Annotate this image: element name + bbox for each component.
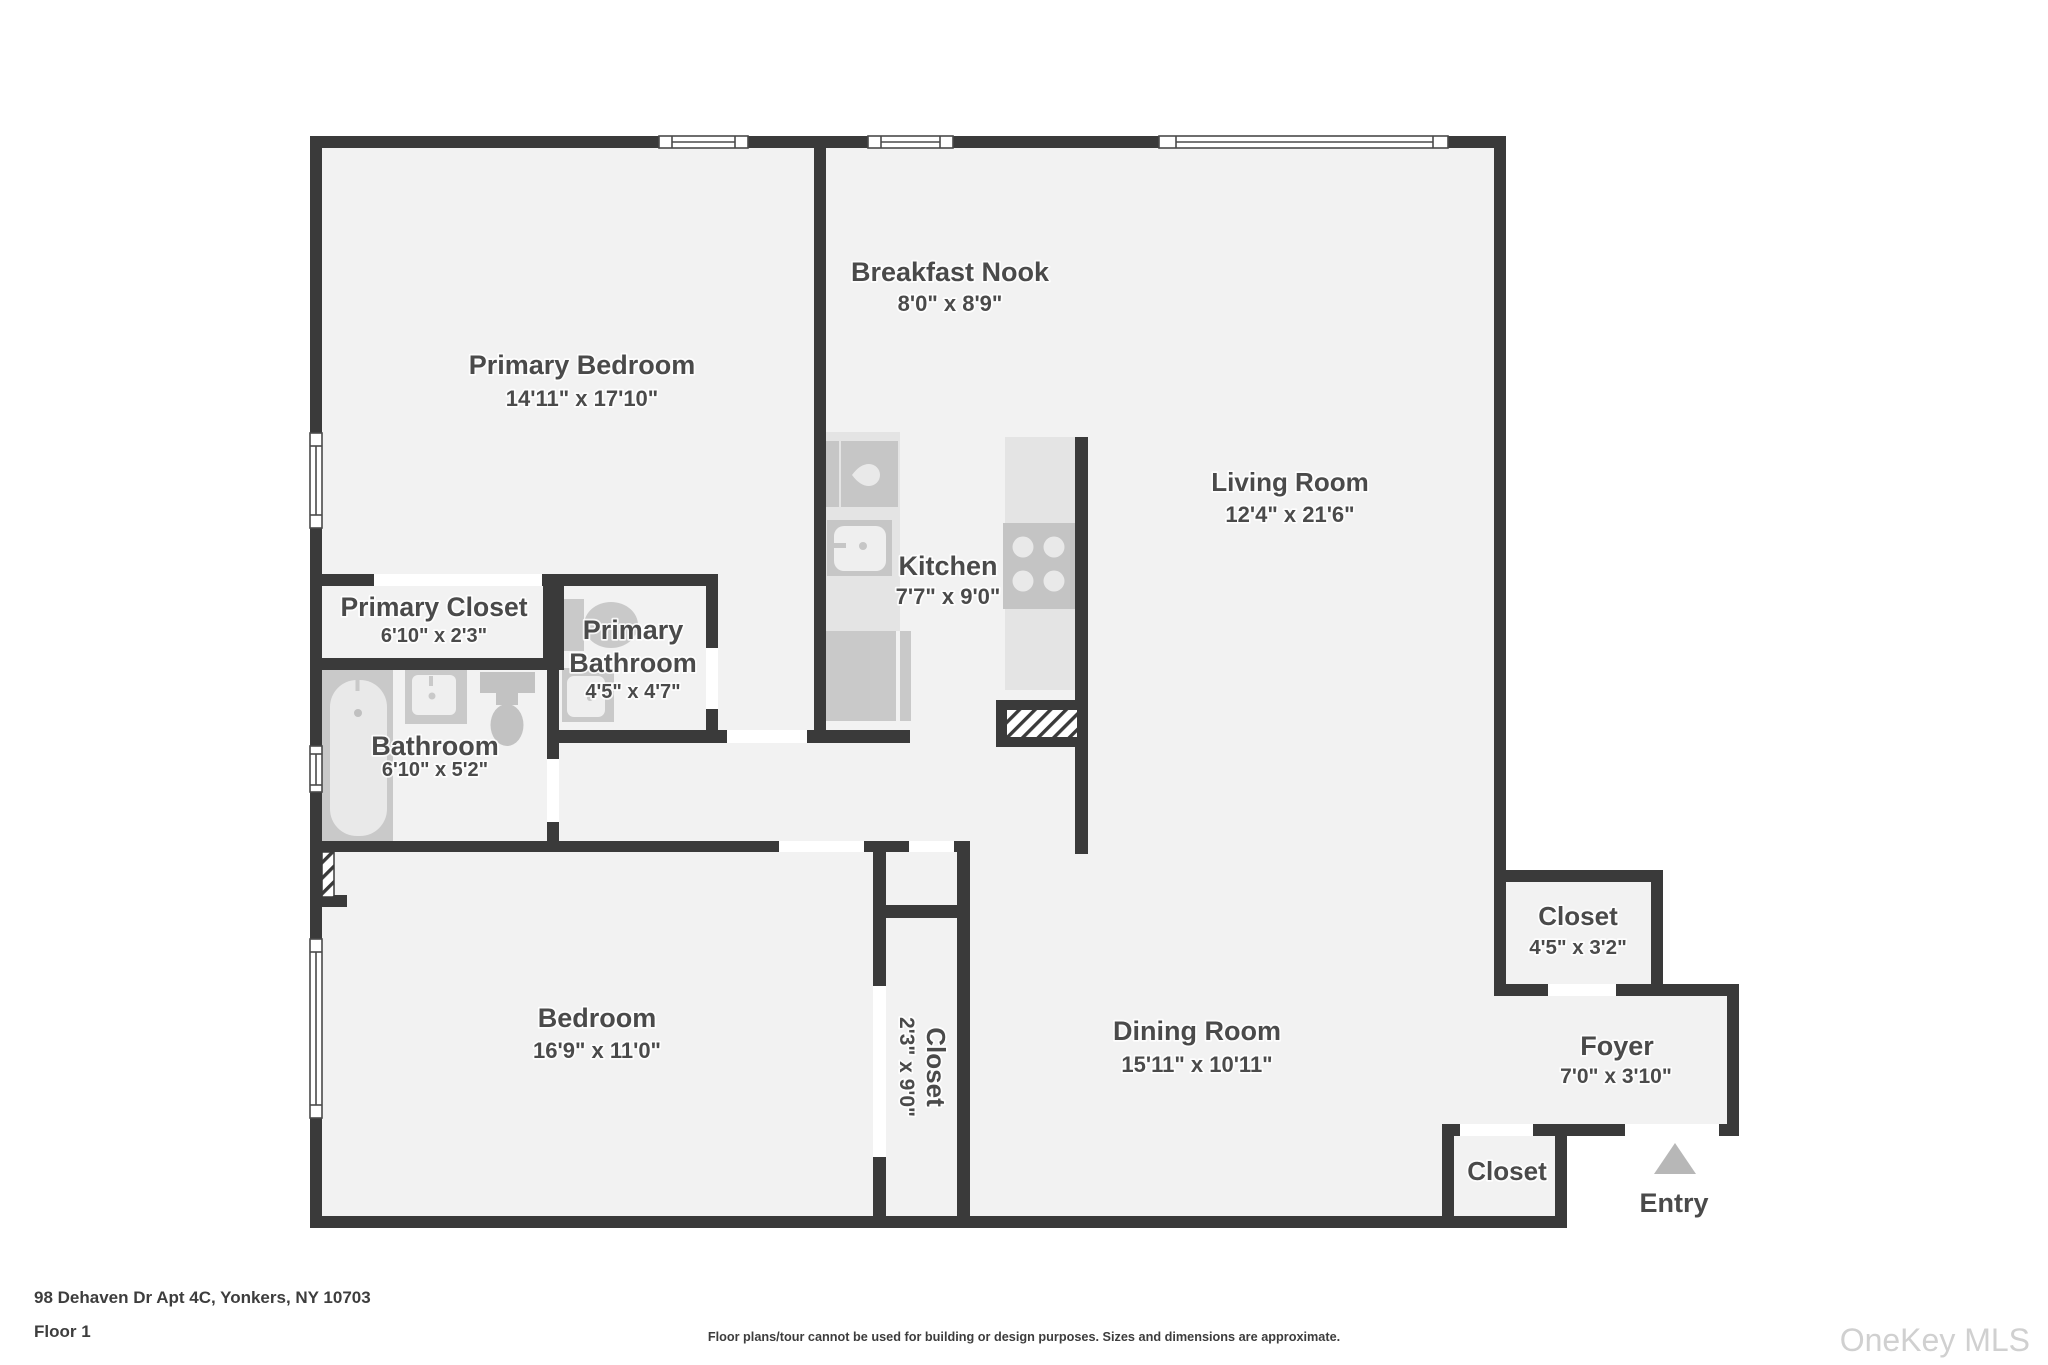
svg-text:Foyer: Foyer (1580, 1031, 1654, 1061)
svg-text:Bathroom: Bathroom (371, 731, 499, 761)
svg-text:4'5" x 4'7": 4'5" x 4'7" (585, 681, 680, 703)
svg-text:4'5" x 3'2": 4'5" x 3'2" (1529, 936, 1627, 959)
svg-text:98 Dehaven Dr Apt 4C, Yonkers,: 98 Dehaven Dr Apt 4C, Yonkers, NY 10703 (34, 1288, 371, 1307)
svg-text:12'4" x 21'6": 12'4" x 21'6" (1225, 502, 1354, 527)
svg-text:Closet: Closet (921, 1027, 951, 1107)
svg-text:Closet: Closet (1538, 901, 1618, 931)
svg-text:6'10" x 2'3": 6'10" x 2'3" (381, 625, 487, 647)
svg-text:Primary Bedroom: Primary Bedroom (469, 350, 696, 380)
svg-text:Bathroom: Bathroom (569, 648, 697, 678)
svg-text:Primary Closet: Primary Closet (340, 592, 527, 622)
svg-text:15'11" x 10'11": 15'11" x 10'11" (1121, 1052, 1272, 1077)
svg-text:Kitchen: Kitchen (898, 551, 997, 581)
svg-text:Floor 1: Floor 1 (34, 1322, 91, 1341)
svg-text:Primary: Primary (583, 615, 684, 645)
svg-text:14'11" x 17'10": 14'11" x 17'10" (506, 386, 658, 411)
svg-text:7'7" x 9'0": 7'7" x 9'0" (896, 584, 1001, 609)
svg-text:Floor plans/tour cannot be use: Floor plans/tour cannot be used for buil… (708, 1330, 1340, 1344)
svg-text:2'3" x 9'0": 2'3" x 9'0" (895, 1017, 918, 1117)
svg-text:Bedroom: Bedroom (538, 1003, 657, 1033)
svg-text:7'0" x 3'10": 7'0" x 3'10" (1560, 1065, 1672, 1088)
svg-text:Entry: Entry (1639, 1188, 1708, 1218)
svg-text:OneKey MLS: OneKey MLS (1840, 1322, 2030, 1358)
svg-text:16'9" x 11'0": 16'9" x 11'0" (533, 1038, 661, 1063)
svg-text:Dining Room: Dining Room (1113, 1016, 1281, 1046)
svg-text:Living Room: Living Room (1211, 467, 1368, 497)
svg-text:6'10" x 5'2": 6'10" x 5'2" (382, 759, 488, 781)
svg-text:Closet: Closet (1467, 1156, 1547, 1186)
svg-text:Breakfast Nook: Breakfast Nook (851, 257, 1050, 287)
svg-text:8'0" x 8'9": 8'0" x 8'9" (898, 291, 1003, 316)
